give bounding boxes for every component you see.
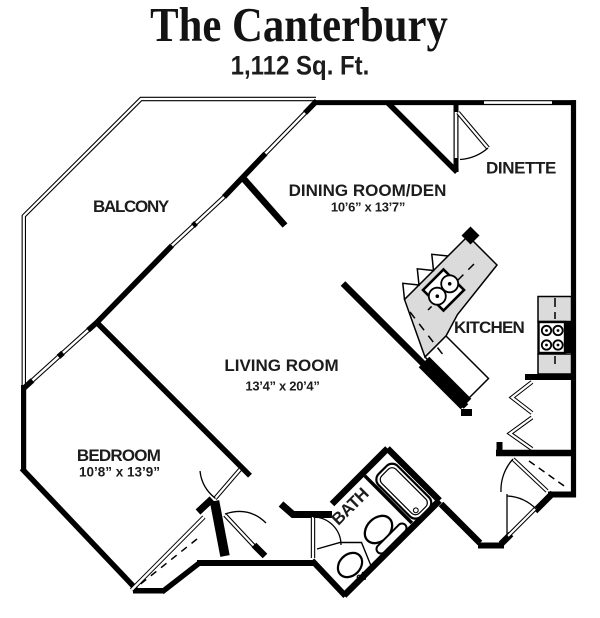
svg-text:BATH: BATH	[328, 484, 373, 529]
svg-text:10’6” x 13’7”: 10’6” x 13’7”	[331, 200, 405, 215]
svg-text:LIVING ROOM: LIVING ROOM	[224, 356, 338, 375]
svg-text:13’4” x 20’4”: 13’4” x 20’4”	[245, 379, 319, 394]
svg-text:BEDROOM: BEDROOM	[77, 446, 161, 465]
svg-text:1,112 Sq. Ft.: 1,112 Sq. Ft.	[231, 51, 370, 81]
svg-text:DINETTE: DINETTE	[486, 159, 556, 178]
svg-text:BALCONY: BALCONY	[93, 197, 170, 216]
svg-text:10’8” x 13’9”: 10’8” x 13’9”	[79, 465, 160, 480]
svg-text:DINING ROOM/DEN: DINING ROOM/DEN	[289, 181, 447, 200]
svg-text:KITCHEN: KITCHEN	[454, 318, 524, 337]
svg-text:The Canterbury: The Canterbury	[150, 0, 448, 52]
